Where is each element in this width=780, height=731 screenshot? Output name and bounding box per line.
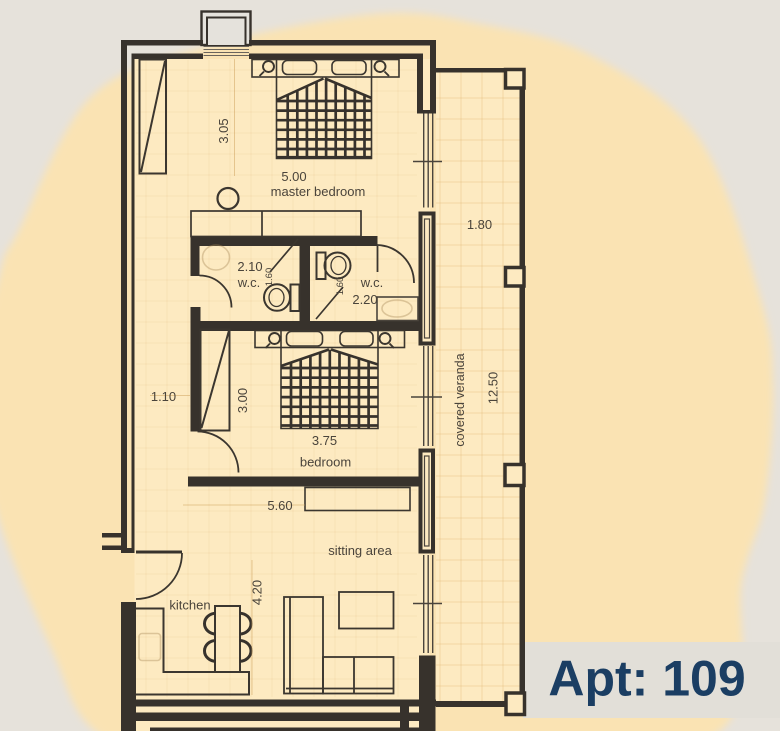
svg-text:1.60: 1.60: [264, 268, 275, 287]
svg-text:12.50: 12.50: [486, 372, 501, 405]
svg-text:5.00: 5.00: [281, 169, 306, 184]
svg-text:2.10: 2.10: [237, 259, 262, 274]
svg-text:4.20: 4.20: [250, 580, 265, 605]
svg-text:kitchen: kitchen: [169, 598, 210, 613]
svg-text:2.20: 2.20: [352, 292, 377, 307]
svg-text:w.c.: w.c.: [237, 275, 260, 290]
svg-text:covered veranda: covered veranda: [453, 353, 467, 446]
svg-text:sitting area: sitting area: [328, 543, 392, 558]
svg-text:3.05: 3.05: [216, 118, 231, 143]
svg-text:1.10: 1.10: [151, 389, 176, 404]
svg-text:3.00: 3.00: [235, 388, 250, 413]
svg-text:3.75: 3.75: [312, 433, 337, 448]
svg-text:1.60: 1.60: [335, 277, 346, 296]
svg-text:w.c.: w.c.: [360, 275, 383, 290]
svg-text:Apt: 109: Apt: 109: [548, 651, 745, 707]
svg-text:bedroom: bedroom: [300, 455, 351, 470]
svg-text:master bedroom: master bedroom: [271, 184, 366, 199]
svg-text:5.60: 5.60: [267, 498, 292, 513]
svg-text:1.80: 1.80: [467, 217, 492, 232]
